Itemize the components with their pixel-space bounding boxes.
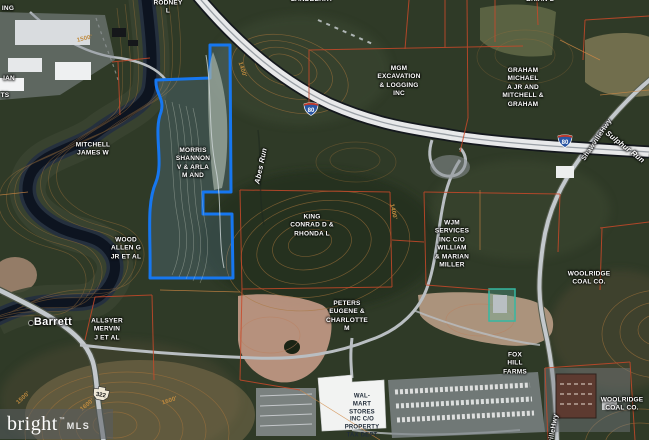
teal-parcel-building: [493, 295, 507, 313]
coal-building: [556, 374, 596, 418]
watermark-suffix: MLS: [67, 421, 91, 431]
bright-mls-watermark: bright™MLS: [0, 409, 113, 439]
shield-number: 80: [562, 140, 569, 146]
dark-building: [112, 28, 126, 37]
shield-number: 80: [308, 108, 315, 114]
industrial-building: [8, 58, 42, 72]
aerial-map-canvas: 80 80 322: [0, 0, 649, 440]
industrial-building: [55, 62, 91, 80]
industrial-building: [15, 20, 90, 45]
white-building: [556, 166, 574, 178]
watermark-brand: bright: [7, 413, 58, 436]
watermark-trademark: ™: [59, 417, 65, 423]
walmart-access-road: [351, 338, 352, 378]
map-viewport[interactable]: 80 80 322 RODNEY L MITCHELL JAMES W MORR…: [0, 0, 649, 440]
white-building: [602, 400, 617, 410]
interchange-lot: [430, 155, 470, 179]
industrial-building: [0, 78, 24, 91]
dark-building: [128, 40, 138, 46]
